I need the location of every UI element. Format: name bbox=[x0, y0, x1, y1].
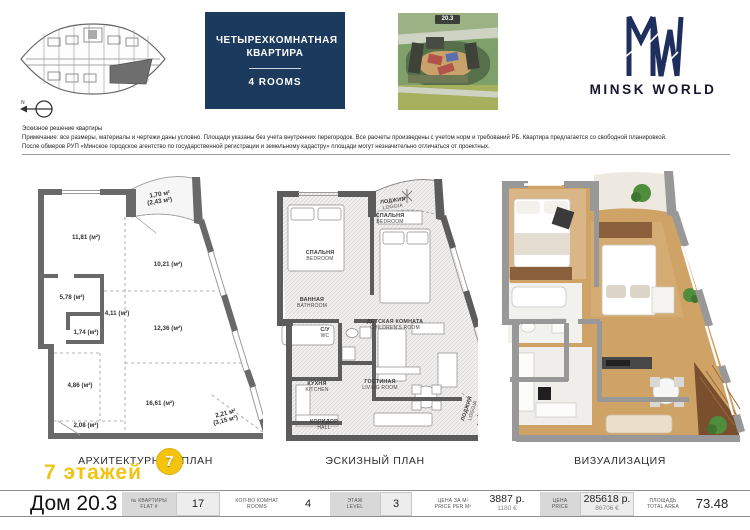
caption-visualization: ВИЗУАЛИЗАЦИЯ bbox=[494, 455, 746, 467]
visualization-render bbox=[494, 167, 746, 453]
apartment-type-ru: ЧЕТЫРЕХКОМНАТНАЯ КВАРТИРА bbox=[216, 34, 334, 60]
disclaimer-title: Эскизное решение квартиры bbox=[22, 125, 730, 133]
price-value: 285618 р.86706 € bbox=[580, 492, 634, 516]
price-per-m2-value: 3887 р.1180 € bbox=[482, 492, 532, 516]
area-room3: 5,78 (м²) bbox=[60, 294, 85, 301]
north-arrow-icon: N bbox=[18, 96, 62, 122]
house-number: Дом 20.3 bbox=[30, 492, 122, 516]
flat-value: 17 bbox=[176, 492, 220, 516]
area-room2: 10,21 (м²) bbox=[154, 261, 182, 268]
area-corridor: 4,11 (м²) bbox=[105, 310, 130, 317]
disclaimer-note: Примечание: все размеры, материалы и чер… bbox=[22, 134, 730, 142]
area-room4: 12,36 (м²) bbox=[154, 325, 182, 332]
disclaimer-block: Эскизное решение квартиры Примечание: вс… bbox=[22, 125, 730, 151]
rooms-label: КОЛ-ВО КОМНАТROOMS bbox=[228, 492, 286, 516]
caption-sketch-plan: ЭСКИЗНЫЙ ПЛАН bbox=[272, 455, 478, 467]
total-area-value: 73.48 bbox=[686, 492, 738, 516]
mw-monogram-icon bbox=[622, 14, 684, 78]
block-number-badge: 20.3 bbox=[435, 15, 460, 24]
aerial-low-block bbox=[408, 75, 468, 83]
apartment-type-card: ЧЕТЫРЕХКОМНАТНАЯ КВАРТИРА 4 ROOMS bbox=[205, 12, 345, 109]
room-hall-en: HALL bbox=[317, 425, 330, 431]
level-label: ЭТАЖLEVEL bbox=[330, 492, 380, 516]
aerial-tower-top bbox=[426, 37, 444, 49]
area-wc: 1,74 (м²) bbox=[74, 329, 99, 336]
sketch-plan: СПАЛЬНЯ BEDROOM ЛОДЖИЯ LOGGIA СПАЛЬНЯ BE… bbox=[272, 171, 478, 449]
total-area-label: ПЛОЩАДЬTOTAL AREA bbox=[640, 492, 686, 516]
apartment-type-en: 4 ROOMS bbox=[248, 77, 301, 88]
brand-name: MINSK WORLD bbox=[590, 82, 717, 97]
disclaimer-note-2: После обмеров РУП «Минское городское аге… bbox=[22, 143, 730, 151]
price-per-m2-label: ЦЕНА ЗА М²PRICE PER M² bbox=[424, 492, 482, 516]
area-room1: 11,81 (м²) bbox=[72, 234, 100, 241]
brand-logo: MINSK WORLD bbox=[588, 14, 718, 106]
aerial-site-render: 20.3 bbox=[398, 13, 498, 110]
room-bedroom1-en: BEDROOM bbox=[306, 256, 333, 262]
room-living-en: LIVING ROOM bbox=[362, 385, 398, 391]
apartment-brochure-sheet: N ЧЕТЫРЕХКОМНАТНАЯ КВАРТИРА 4 ROOMS 20.3 bbox=[0, 0, 750, 530]
room-wc-en: WC bbox=[321, 333, 330, 339]
header-rule bbox=[22, 154, 730, 155]
room-bedroom2-en: BEDROOM bbox=[376, 219, 403, 225]
building-footprint-schematic bbox=[18, 20, 168, 98]
divider bbox=[249, 68, 301, 69]
floors-badge: 7 bbox=[156, 448, 183, 475]
floors-stamp: 7 этажей bbox=[44, 461, 142, 485]
area-living: 16,61 (м²) bbox=[146, 400, 174, 407]
flat-label: № КВАРТИРЫFLAT # bbox=[122, 492, 176, 516]
summary-bar: Дом 20.3 № КВАРТИРЫFLAT # 17 КОЛ-ВО КОМН… bbox=[0, 490, 750, 517]
north-label: N bbox=[21, 100, 25, 106]
area-kitchen-zone: 4,86 (м²) bbox=[68, 382, 93, 389]
architectural-plan: 1,70 м² (2,43 м²) 11,81 (м²) 10,21 (м²) … bbox=[28, 173, 263, 445]
room-bathroom-en: BATHROOM bbox=[297, 303, 327, 309]
area-entry: 2,08 (м²) bbox=[74, 422, 99, 429]
room-children-en: CHILDREN'S ROOM bbox=[370, 325, 420, 331]
price-label: ЦЕНАPRICE bbox=[540, 492, 580, 516]
level-value: 3 bbox=[380, 492, 412, 516]
rooms-value: 4 bbox=[286, 492, 330, 516]
room-kitchen-en: KITCHEN bbox=[305, 387, 329, 393]
